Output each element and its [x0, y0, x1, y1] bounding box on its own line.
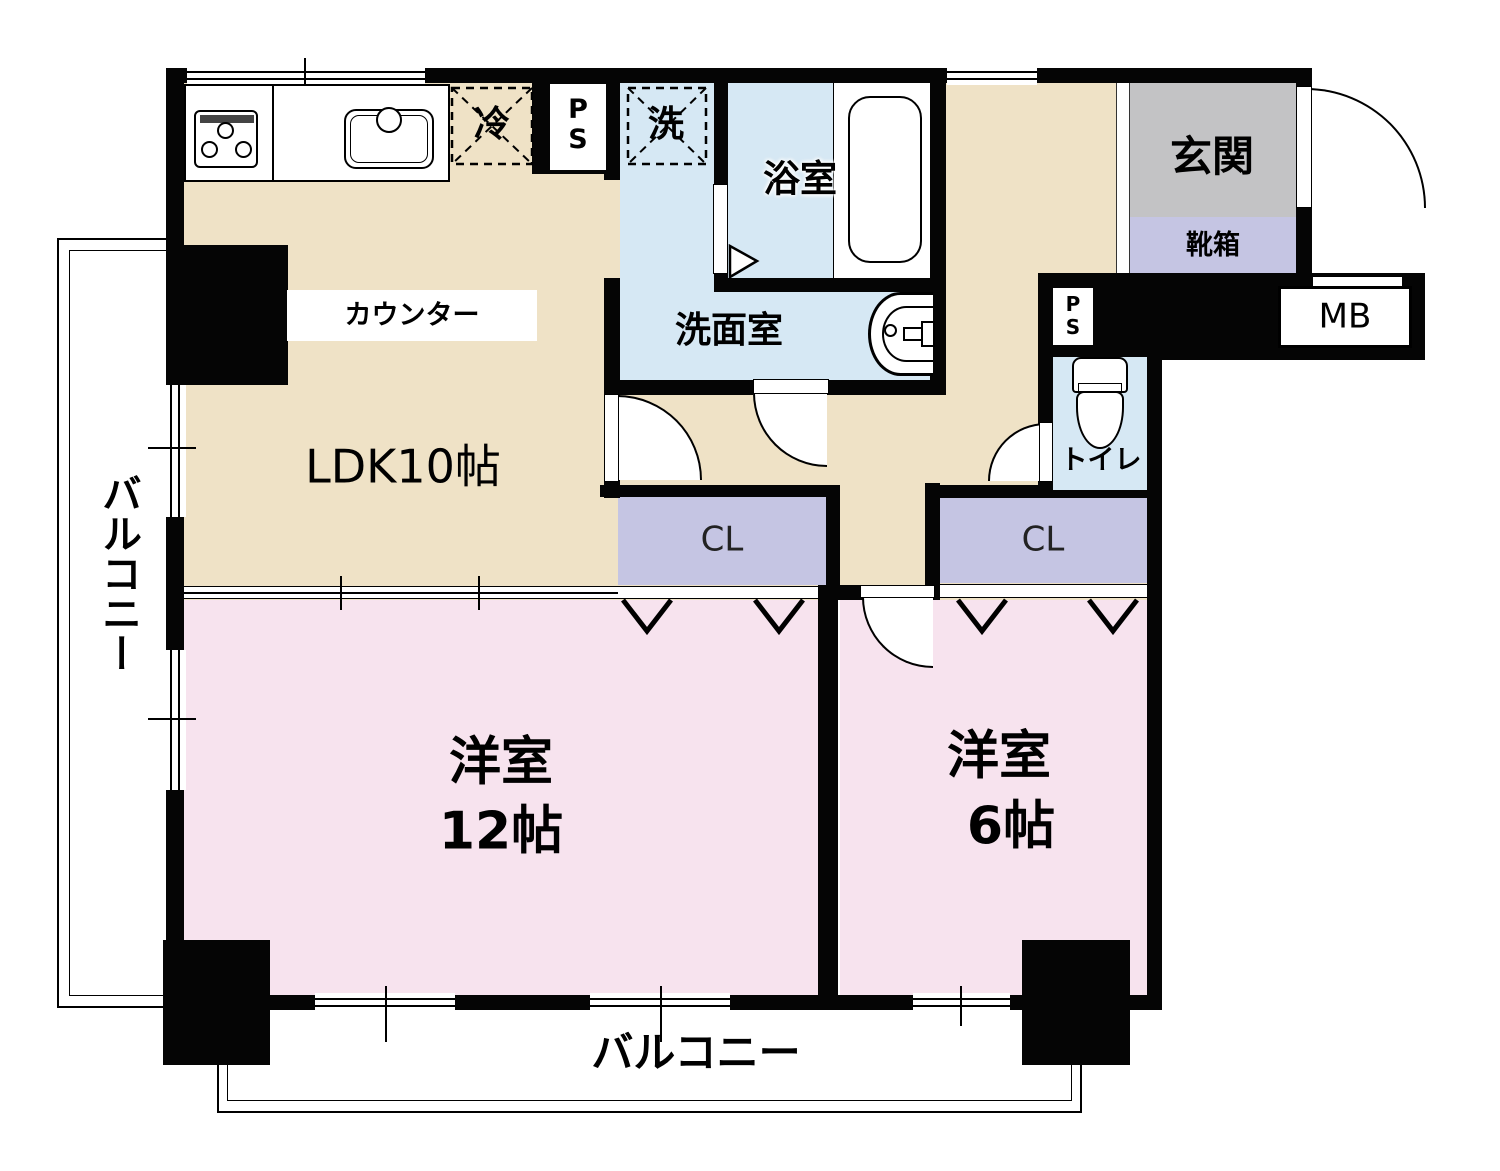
pipe-space-kitchen: PS	[550, 84, 606, 170]
floor-plan: PS PS LDK10帖 カウンター 洋室 12帖 洋室 6	[0, 0, 1500, 1171]
closet-right-track	[940, 584, 1147, 598]
tick-track-2	[478, 576, 480, 610]
wall-washroom-bottom-b	[827, 380, 946, 395]
door-arc-entrance	[1306, 88, 1426, 208]
label-bath: 浴室	[763, 160, 837, 201]
pipe-space-toilet: PS	[1053, 288, 1093, 345]
label-western12-line1: 洋室	[449, 734, 553, 791]
tick-left-window-2	[148, 718, 196, 720]
kitchen-counter-divider	[272, 84, 274, 182]
wall-entrance-right-bottom	[1296, 207, 1312, 277]
label-washroom: 洗面室	[675, 311, 783, 351]
window-left-ldk	[164, 385, 186, 517]
tick-left-window-1	[148, 447, 196, 449]
wall-between-bedrooms	[818, 585, 838, 1010]
wall-closet-right-left	[925, 483, 940, 600]
label-western12-line2: 12帖	[439, 803, 563, 860]
stove-icon	[194, 110, 258, 168]
door-leaf-bathroom	[713, 184, 728, 274]
door-leaf-western6	[860, 585, 935, 598]
door-leaf-washroom	[753, 379, 829, 394]
label-balcony-left: バルコニー	[96, 473, 140, 673]
entrance-step	[1116, 83, 1130, 275]
wall-bathroom-vert	[714, 83, 728, 185]
label-refrigerator: 冷	[474, 105, 510, 145]
label-counter: カウンター	[345, 301, 480, 331]
label-western6-line1: 洋室	[947, 728, 1051, 785]
closet-chevron-4	[1086, 597, 1140, 637]
window-top-corridor	[947, 66, 1037, 85]
label-shoe-box: 靴箱	[1186, 231, 1240, 261]
tick-bottom-window-3	[960, 986, 962, 1026]
label-ldk: LDK10帖	[305, 442, 501, 493]
label-meter-box: MB	[1319, 298, 1372, 335]
label-closet-left: CL	[701, 521, 744, 558]
label-washer: 洗	[648, 105, 684, 145]
pillar-bottom-right	[1022, 940, 1130, 1065]
bathroom-entry-arrow-icon	[728, 244, 760, 280]
closet-chevron-3	[955, 597, 1009, 637]
door-leaf-toilet	[1039, 422, 1053, 482]
closet-chevron-2	[752, 597, 806, 637]
label-toilet: トイレ	[1061, 446, 1142, 476]
wall-closet-left-top	[600, 485, 840, 497]
partition-track-ldk-midline	[184, 592, 618, 594]
tick-track-1	[340, 576, 342, 610]
kitchen-faucet-icon	[376, 107, 402, 133]
label-entrance: 玄関	[1170, 134, 1254, 180]
wall-left	[166, 68, 184, 997]
tick-bottom-window-1	[385, 986, 387, 1042]
window-left-western12	[164, 650, 186, 790]
window-top-kitchen	[187, 66, 425, 85]
window-bottom-3	[913, 993, 1010, 1012]
wall-bathroom-horiz	[714, 278, 946, 292]
label-closet-right: CL	[1022, 521, 1065, 558]
label-balcony-bottom: バルコニー	[591, 1030, 800, 1076]
wall-right	[1147, 273, 1162, 1010]
washbasin-drain	[884, 324, 897, 337]
pillar-bottom-left	[163, 940, 270, 1065]
wall-closet-left-right	[826, 485, 840, 600]
label-western6-line2: 6帖	[967, 798, 1055, 855]
washbasin-faucet-knob	[921, 321, 935, 347]
door-leaf-entrance	[1296, 86, 1312, 208]
bathtub-icon	[848, 96, 922, 263]
wall-entrance-right-top	[1296, 68, 1312, 88]
pillar-top-left	[166, 245, 288, 385]
door-leaf-ldk	[604, 394, 619, 482]
room-western12-floor	[184, 600, 818, 995]
wall-washroom-bottom-a	[604, 380, 753, 395]
closet-chevron-1	[620, 597, 674, 637]
